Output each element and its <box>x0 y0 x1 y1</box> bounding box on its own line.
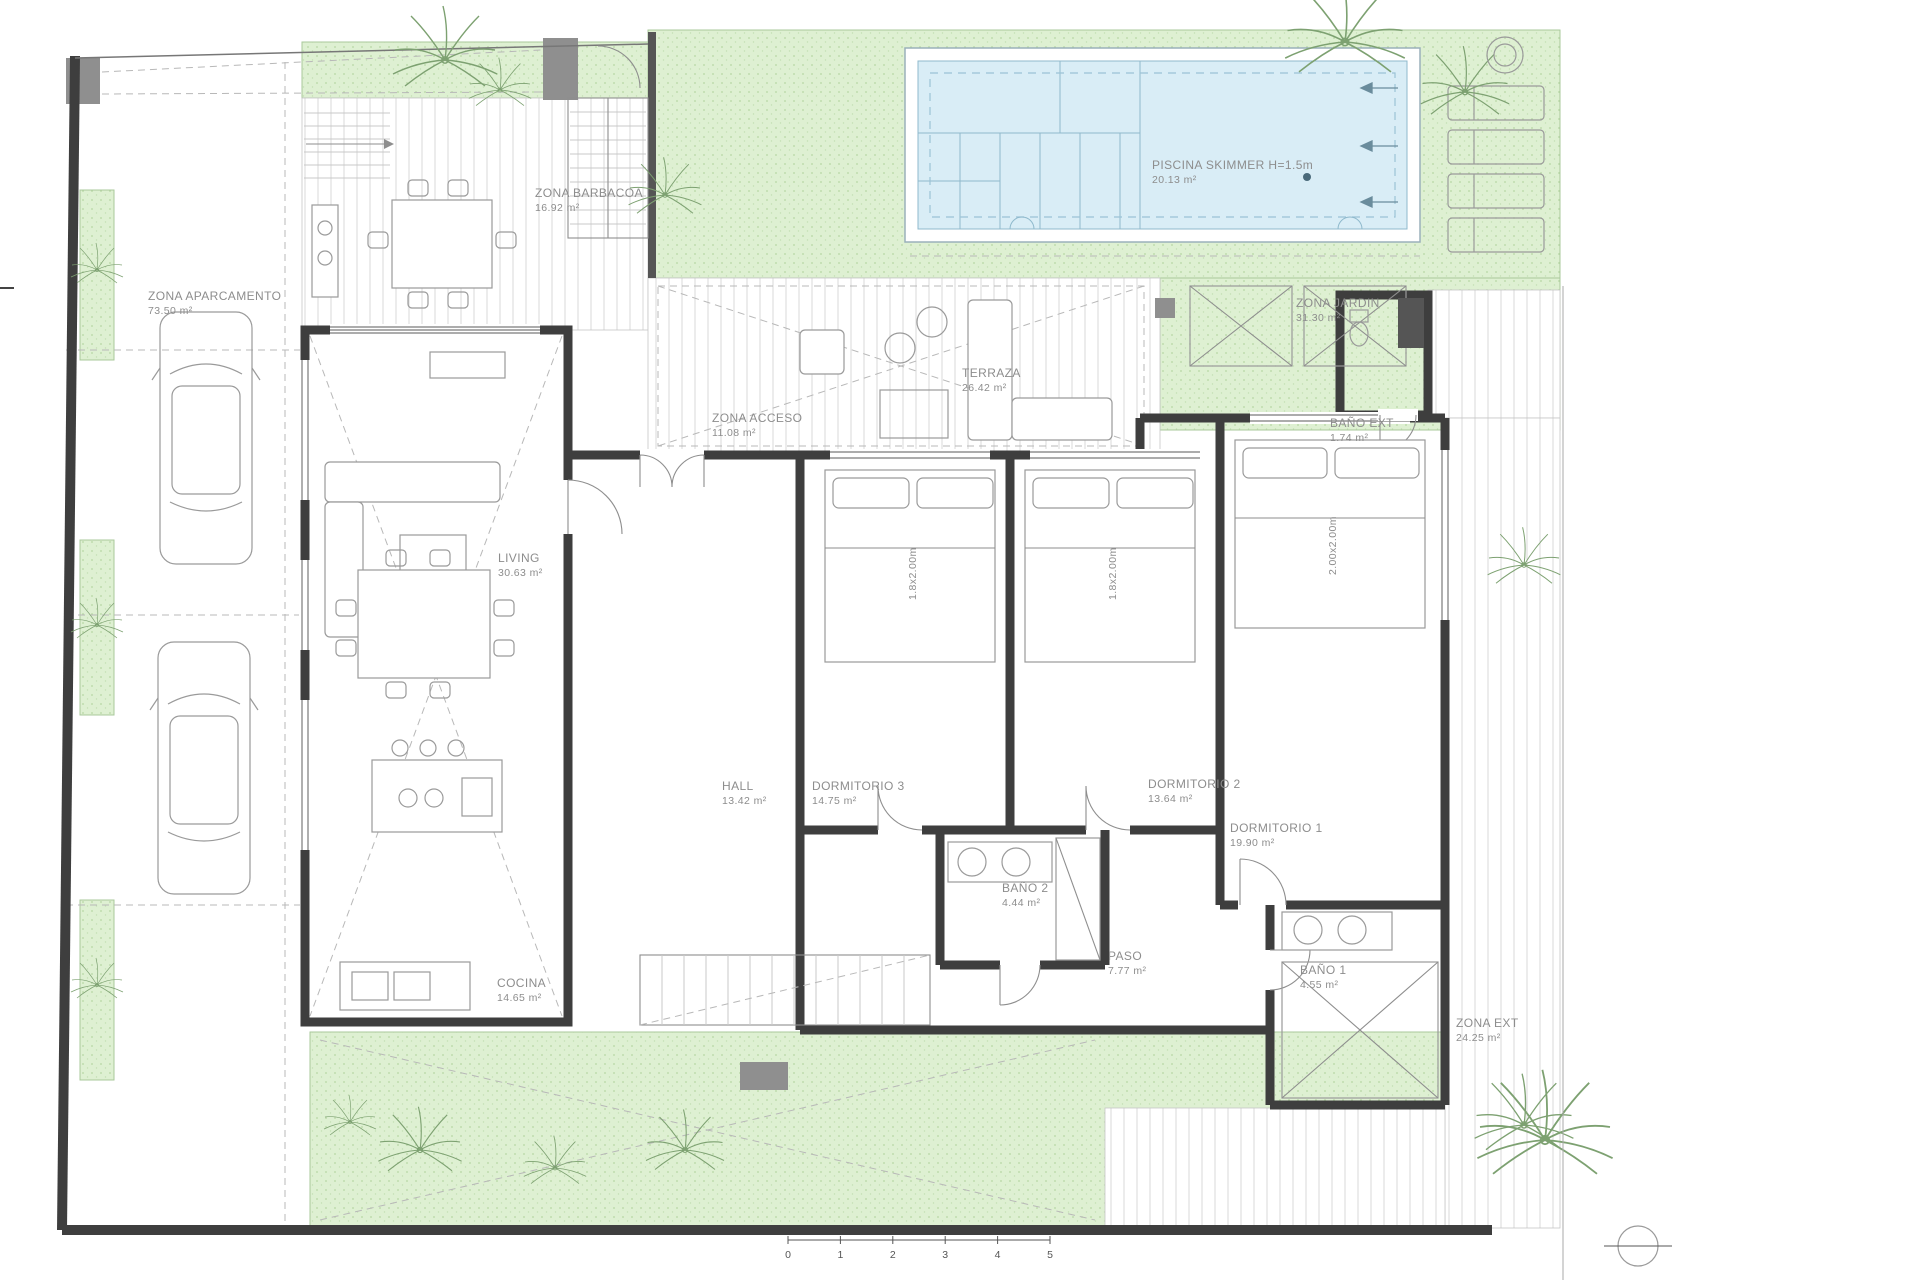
svg-text:19.90 m²: 19.90 m² <box>1230 837 1275 849</box>
label-dormitorio1: DORMITORIO 1 <box>1230 821 1323 835</box>
svg-text:16.92 m²: 16.92 m² <box>535 202 580 214</box>
planter-left-2 <box>80 540 114 715</box>
label-bano-ext: BAÑO EXT <box>1330 416 1394 430</box>
dining-table <box>358 570 490 678</box>
svg-text:4.44 m²: 4.44 m² <box>1002 897 1040 909</box>
kitchen-island <box>372 760 502 832</box>
svg-text:14.75 m²: 14.75 m² <box>812 795 857 807</box>
label-terraza: TERRAZA <box>962 366 1021 380</box>
svg-text:7.77 m²: 7.77 m² <box>1108 965 1146 977</box>
floor-plan-canvas: ZONA APARCAMENTO 73.50 m² ZONA BARBACOA … <box>0 0 1920 1280</box>
pool-drain-dot <box>1303 173 1311 181</box>
scale-bar: 0 1 2 3 4 5 <box>785 1236 1053 1261</box>
label-jardin: ZONA JARDIN <box>1296 296 1380 310</box>
car-2 <box>150 642 258 894</box>
planter-wall-pool <box>648 32 656 278</box>
svg-text:26.42 m²: 26.42 m² <box>962 382 1007 394</box>
svg-text:13.42 m²: 13.42 m² <box>722 795 767 807</box>
sofa <box>325 462 500 502</box>
label-zona-ext: ZONA EXT <box>1456 1016 1519 1030</box>
label-bano1: BAÑO 1 <box>1300 963 1346 977</box>
property-wall-left <box>62 56 75 1230</box>
block-bottom <box>740 1062 788 1090</box>
deck-right-top <box>1428 290 1560 418</box>
svg-text:14.65 m²: 14.65 m² <box>497 992 542 1004</box>
label-paso: PASO <box>1108 949 1142 963</box>
svg-text:73.50 m²: 73.50 m² <box>148 305 193 317</box>
parking-zone <box>150 312 260 894</box>
floor-plan-drawing: ZONA APARCAMENTO 73.50 m² ZONA BARBACOA … <box>0 0 1920 1280</box>
block-terraza <box>1155 298 1175 318</box>
pool <box>905 48 1420 242</box>
label-barbacoa: ZONA BARBACOA <box>535 186 643 200</box>
deck-bottom-pocket <box>1105 1108 1445 1228</box>
outdoor-sofa-2 <box>1012 398 1112 440</box>
planter-left-3 <box>80 900 114 1080</box>
planter-left-1 <box>80 190 114 360</box>
living-furniture <box>325 352 514 698</box>
kitchen-furniture <box>340 740 502 1010</box>
label-cocina: COCINA <box>497 976 546 990</box>
label-hall: HALL <box>722 779 754 793</box>
svg-text:24.25 m²: 24.25 m² <box>1456 1032 1501 1044</box>
scale-4: 4 <box>995 1249 1001 1261</box>
svg-text:31.30 m²: 31.30 m² <box>1296 312 1341 324</box>
scale-3: 3 <box>942 1249 948 1261</box>
svg-text:13.64 m²: 13.64 m² <box>1148 793 1193 805</box>
sofa-chaise <box>325 502 363 637</box>
svg-text:30.63 m²: 30.63 m² <box>498 567 543 579</box>
scale-1: 1 <box>837 1249 843 1261</box>
label-bed-dorm3: 1.8x2.00m <box>907 547 919 600</box>
label-dormitorio3: DORMITORIO 3 <box>812 779 905 793</box>
label-piscina: PISCINA SKIMMER H=1.5m <box>1152 158 1313 172</box>
label-bed-dorm2: 1.8x2.00m <box>1107 547 1119 600</box>
label-aparcamento: ZONA APARCAMENTO <box>148 289 281 303</box>
garden-strip-top-left <box>302 42 648 98</box>
svg-text:1.74 m²: 1.74 m² <box>1330 432 1368 444</box>
label-bano2: BAÑO 2 <box>1002 881 1048 895</box>
scale-5: 5 <box>1047 1249 1053 1261</box>
svg-text:4.55 m²: 4.55 m² <box>1300 979 1338 991</box>
pool-water <box>918 61 1407 229</box>
label-acceso: ZONA ACCESO <box>712 411 802 425</box>
svg-text:11.08 m²: 11.08 m² <box>712 427 756 439</box>
kitchen-counter <box>340 962 470 1010</box>
outdoor-armchair <box>800 330 844 374</box>
label-dormitorio2: DORMITORIO 2 <box>1148 777 1241 791</box>
tv-bench <box>430 352 505 378</box>
outdoor-table <box>392 200 492 288</box>
scale-0: 0 <box>785 1249 791 1261</box>
scale-2: 2 <box>890 1249 896 1261</box>
gate-pillar-right <box>543 38 578 100</box>
label-living: LIVING <box>498 551 540 565</box>
interior-stair <box>640 955 930 1025</box>
label-bed-dorm1: 2.00x2.00m <box>1327 516 1339 575</box>
svg-text:20.13 m²: 20.13 m² <box>1152 174 1197 186</box>
